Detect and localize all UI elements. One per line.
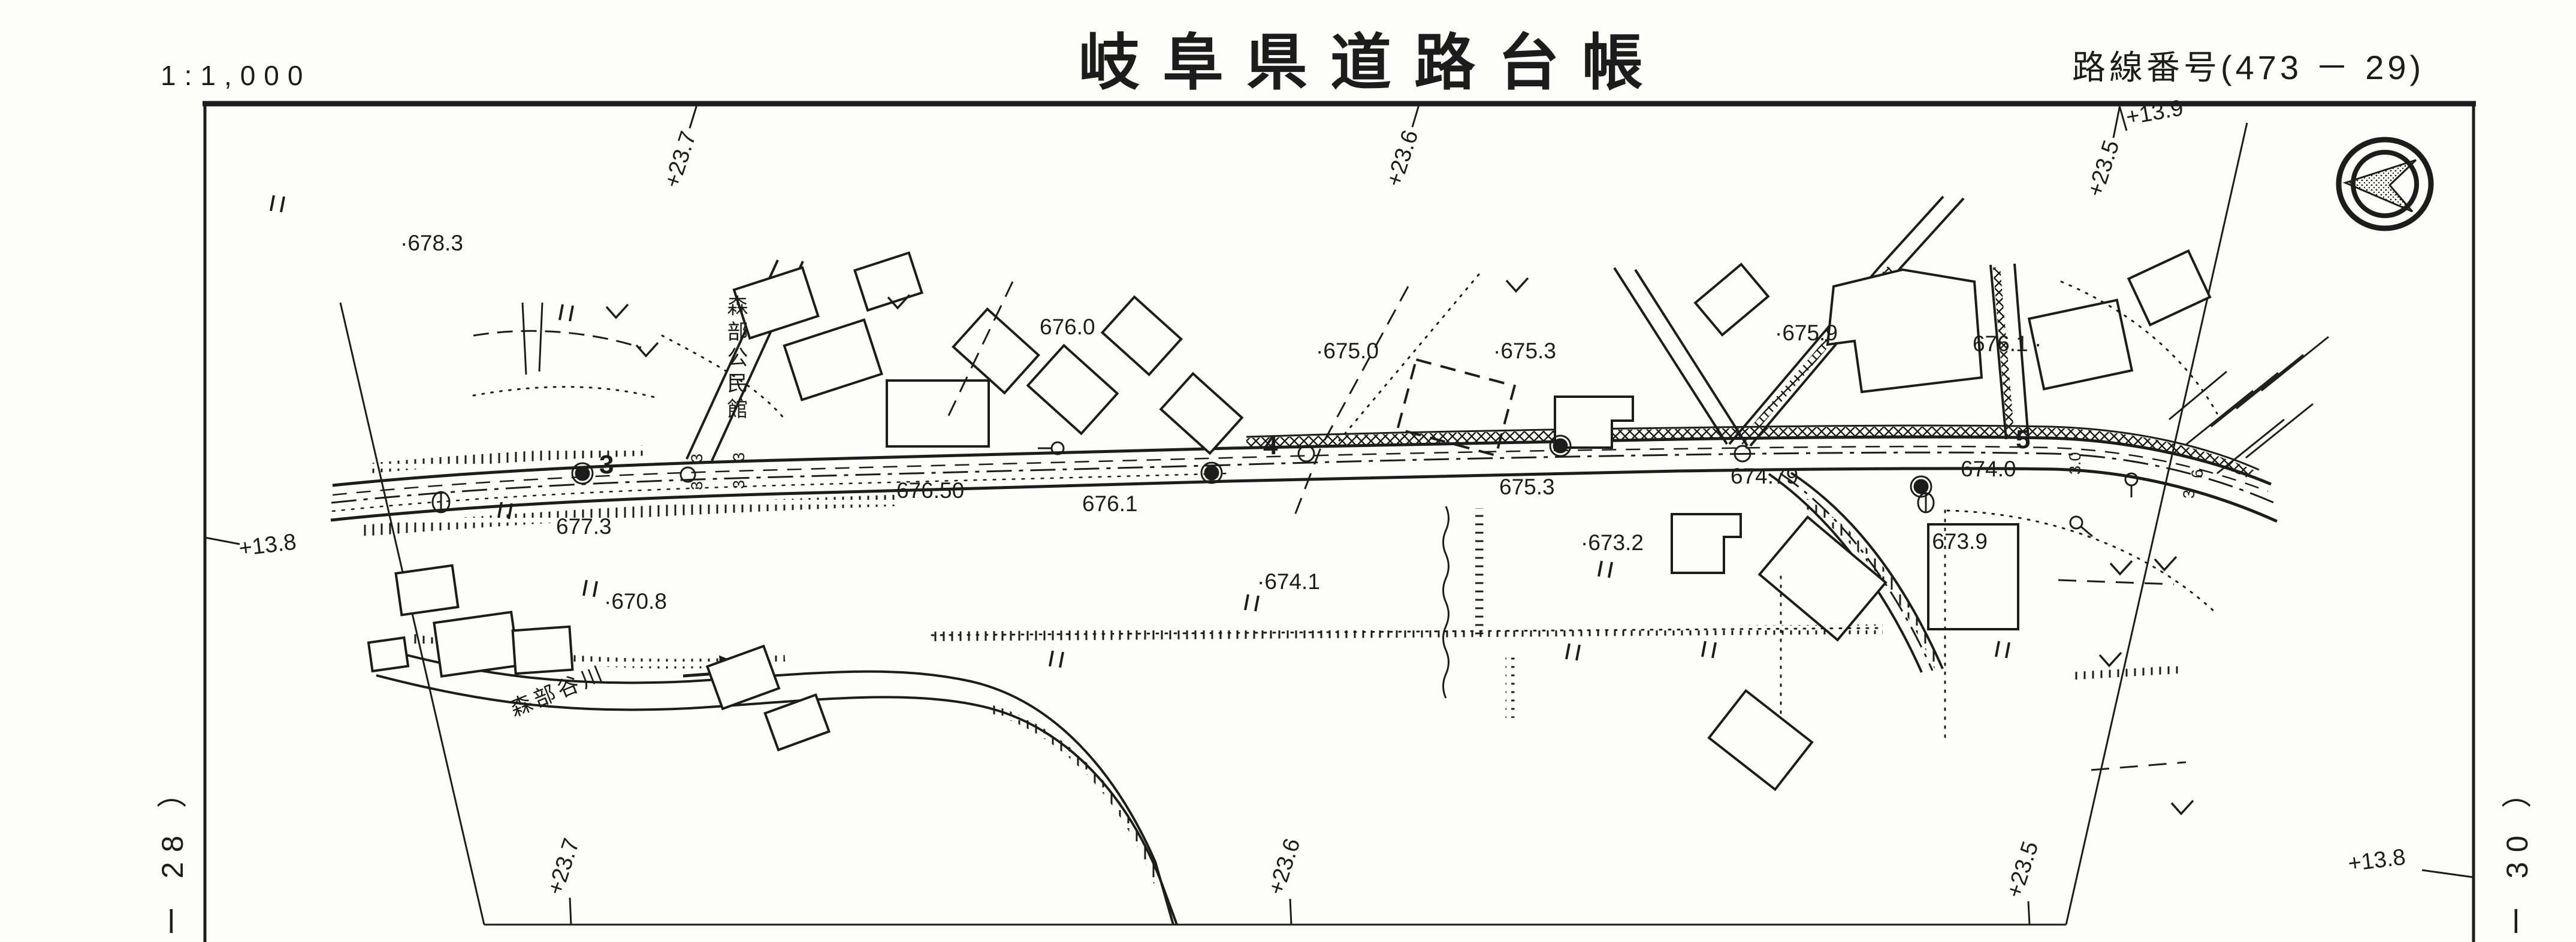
station-4-label: 4 bbox=[1263, 431, 1278, 460]
width-mark-1: 3 bbox=[688, 454, 706, 463]
spot-elev-6741: ·674.1 bbox=[1257, 569, 1320, 594]
grid-label-left: +13.8 bbox=[237, 529, 298, 561]
road-elev-6740: 674.0 bbox=[1961, 457, 2016, 481]
road-elev-6753: 675.3 bbox=[1499, 475, 1555, 499]
grid-label-top-1: +23.7 bbox=[660, 128, 702, 191]
grid-label-top-right: +13.9 bbox=[2124, 95, 2185, 130]
grid-label-top-3: +23.5 bbox=[2083, 137, 2125, 200]
spot-elev-6760: 676.0 bbox=[1040, 315, 1095, 339]
spot-elev-6761: 676.1 · bbox=[1973, 331, 2042, 356]
spot-elev-6759: ·675.9 bbox=[1775, 321, 1838, 345]
width-mark-5: 3.0 bbox=[2066, 452, 2084, 475]
grid-label-bottom-2: +23.6 bbox=[1264, 835, 1306, 898]
spot-elev-6739: ·673.9 bbox=[1925, 529, 1988, 554]
width-mark-6: 6 bbox=[2188, 469, 2206, 478]
map-canvas: 1:1,000 岐阜県道路台帳 路線番号(473 － 29) +23.7 +23… bbox=[0, 0, 2576, 942]
road-elev-6761: 676.1 bbox=[1082, 491, 1138, 516]
station-3-label: 3 bbox=[599, 450, 614, 479]
grid-label-top-2: +23.6 bbox=[1382, 127, 1424, 189]
spot-elev-6750: ·675.0 bbox=[1316, 339, 1379, 363]
width-mark-4: 3 bbox=[730, 480, 748, 489]
large-factory-building bbox=[1828, 270, 1982, 392]
spot-elev-6773: 677.3 bbox=[556, 514, 612, 539]
road-elev-67479: 674.79 bbox=[1731, 464, 1798, 488]
route-number-label: 路線番号(473 － 29) bbox=[2072, 49, 2424, 86]
header-block: 1:1,000 岐阜県道路台帳 路線番号(473 － 29) bbox=[161, 29, 2424, 97]
community-center-label: 森部公民館 bbox=[724, 295, 748, 424]
adjacent-sheet-right: ー 30 ） bbox=[2500, 769, 2534, 936]
road-elev-67650: 676.50 bbox=[896, 478, 964, 503]
width-mark-2: 3 bbox=[688, 481, 706, 490]
grid-label-bottom-1: +23.7 bbox=[543, 835, 585, 898]
spot-elev-6783: ·678.3 bbox=[400, 231, 463, 255]
spot-elev-6732: ·673.2 bbox=[1581, 530, 1644, 555]
spot-elev-6753: ·675.3 bbox=[1493, 339, 1556, 363]
grid-label-bottom-3: +23.5 bbox=[2002, 838, 2044, 901]
adjacent-sheet-left: ー 28 ） bbox=[156, 769, 189, 936]
road-ledger-sheet: 1:1,000 岐阜県道路台帳 路線番号(473 － 29) +23.7 +23… bbox=[0, 0, 2576, 942]
grid-label-bottom-right: +13.8 bbox=[2347, 844, 2407, 876]
station-5-label: 5 bbox=[2016, 425, 2030, 454]
north-arrow-icon bbox=[2339, 140, 2431, 228]
grid-reference-labels: +23.7 +23.6 +23.5 +13.9 +13.8 +23.7 +23.… bbox=[205, 95, 2474, 925]
width-mark-7: 3 bbox=[2180, 490, 2198, 499]
neatline-right bbox=[2066, 123, 2247, 925]
scale-label: 1:1,000 bbox=[161, 60, 311, 91]
width-mark-3: 3 bbox=[730, 452, 748, 461]
spot-elev-6708: ·670.8 bbox=[604, 589, 667, 614]
page-title: 岐阜県道路台帳 bbox=[1079, 29, 1666, 97]
